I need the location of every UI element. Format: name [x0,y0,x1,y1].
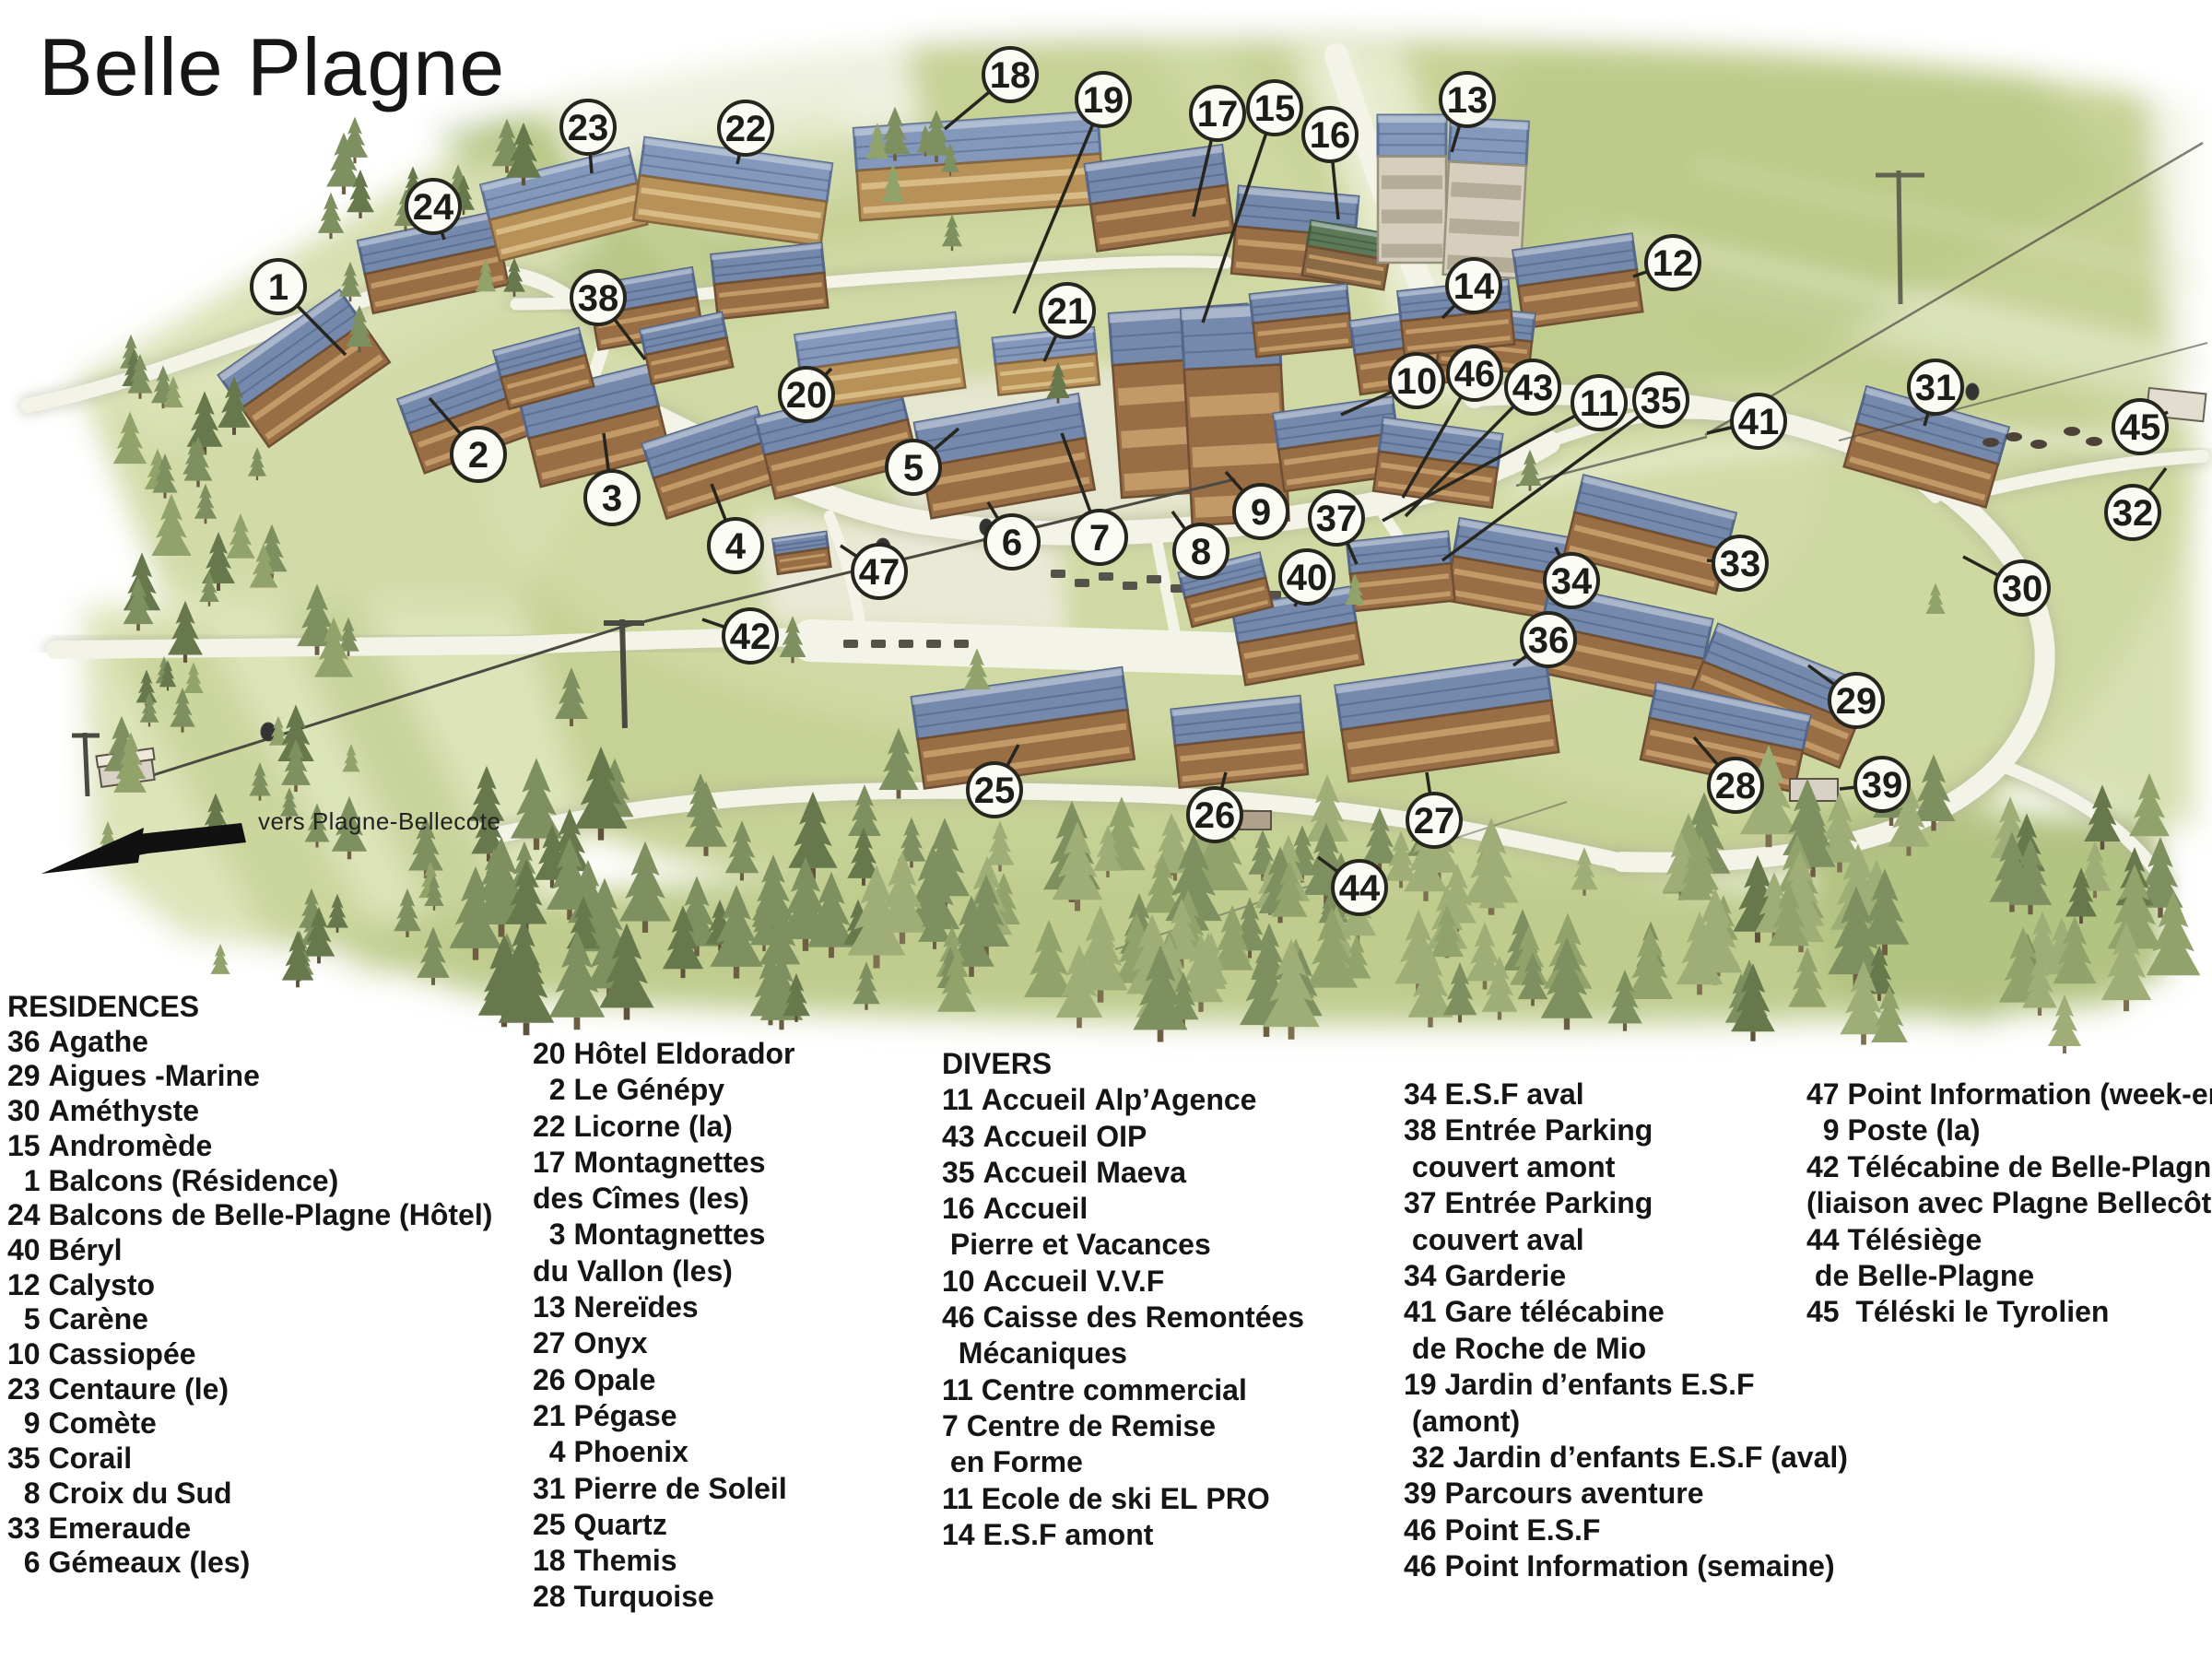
svg-text:5: 5 [903,448,924,488]
svg-text:8: 8 [1191,532,1211,572]
svg-text:37: 37 [1316,499,1358,539]
svg-text:18: 18 [990,55,1031,96]
svg-text:25: 25 [974,771,1016,811]
svg-text:43: 43 [1512,368,1554,408]
svg-text:44: 44 [1339,868,1381,909]
svg-text:20: 20 [786,375,828,416]
svg-text:13: 13 [1447,80,1488,121]
svg-text:33: 33 [1720,544,1761,584]
svg-text:26: 26 [1194,795,1236,836]
svg-text:46: 46 [1454,354,1496,394]
svg-text:10: 10 [1396,361,1438,402]
svg-text:31: 31 [1915,368,1957,408]
svg-text:17: 17 [1197,94,1239,135]
svg-text:40: 40 [1287,558,1328,598]
svg-text:32: 32 [2112,493,2154,534]
svg-text:2: 2 [468,435,488,476]
svg-text:47: 47 [859,552,900,593]
svg-text:36: 36 [1528,620,1570,661]
svg-text:34: 34 [1551,561,1593,602]
svg-text:24: 24 [413,187,454,228]
svg-text:39: 39 [1862,765,1903,806]
svg-text:6: 6 [1002,523,1022,563]
svg-text:12: 12 [1653,243,1694,284]
svg-text:28: 28 [1715,766,1757,806]
svg-text:21: 21 [1047,291,1088,332]
svg-text:35: 35 [1641,381,1682,421]
svg-text:1: 1 [268,267,288,308]
svg-text:19: 19 [1083,80,1124,121]
svg-text:9: 9 [1251,492,1271,533]
svg-text:3: 3 [602,478,622,519]
svg-text:4: 4 [725,526,747,567]
svg-text:29: 29 [1836,681,1877,722]
svg-text:42: 42 [730,617,771,657]
svg-text:14: 14 [1453,266,1495,307]
svg-text:23: 23 [568,108,609,148]
svg-text:7: 7 [1089,518,1110,559]
svg-text:30: 30 [2002,569,2043,609]
svg-text:45: 45 [2120,407,2161,448]
svg-text:15: 15 [1254,88,1296,129]
svg-text:16: 16 [1310,115,1351,156]
svg-text:41: 41 [1738,402,1780,442]
svg-text:11: 11 [1580,383,1618,424]
svg-text:22: 22 [725,109,767,149]
svg-text:38: 38 [578,278,619,319]
svg-text:27: 27 [1414,801,1455,841]
